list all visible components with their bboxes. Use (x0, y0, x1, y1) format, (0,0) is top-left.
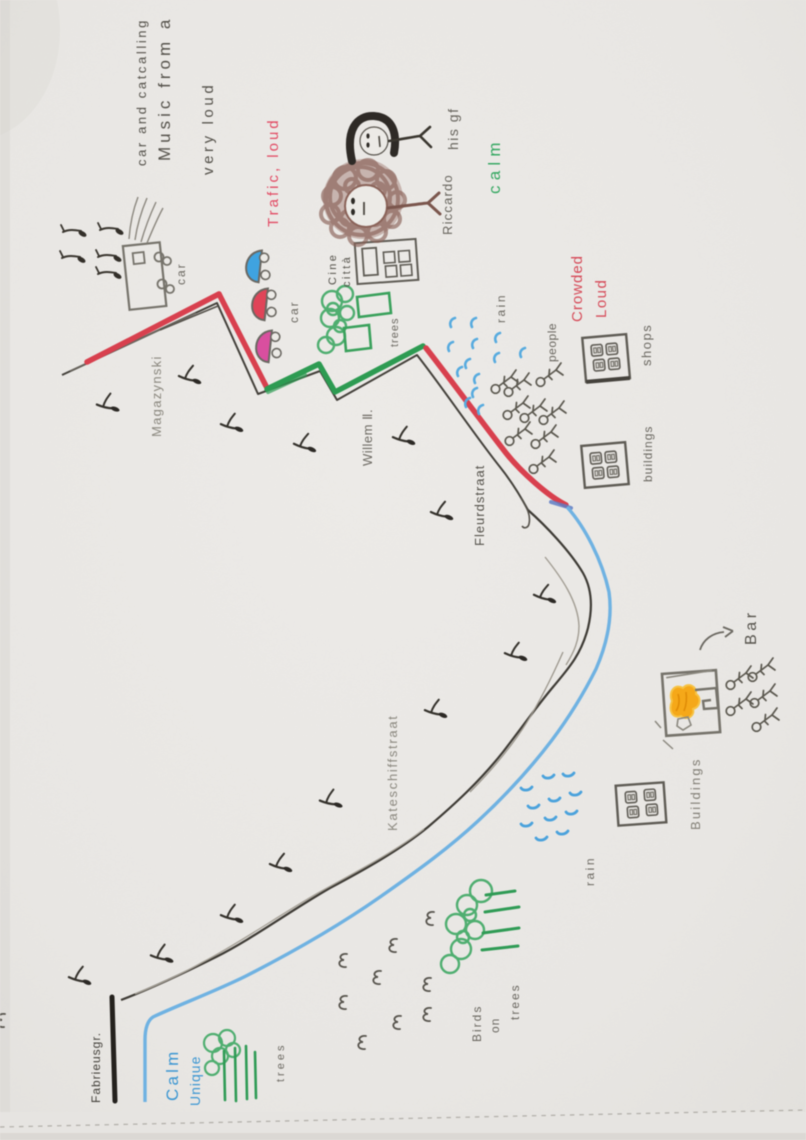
svg-text:Kateschiffstraat: Kateschiffstraat (385, 714, 400, 831)
svg-text:trees: trees (508, 983, 522, 1020)
svg-text:Loud: Loud (593, 279, 610, 318)
svg-text:Riccardo: Riccardo (440, 174, 455, 235)
svg-text:Bar: Bar (743, 609, 760, 645)
svg-text:Cine: Cine (327, 253, 339, 285)
svg-text:car: car (287, 300, 301, 323)
svg-text:trees: trees (389, 318, 401, 347)
svg-text:Music from a: Music from a (155, 16, 174, 161)
svg-text:Buildings: Buildings (688, 757, 703, 830)
svg-text:città: città (341, 255, 353, 287)
svg-text:Fabrieusgr.: Fabrieusgr. (89, 1032, 103, 1103)
svg-text:rain: rain (494, 293, 508, 323)
svg-text:car and catcalling: car and catcalling (134, 18, 149, 166)
svg-text:shops: shops (639, 324, 654, 366)
svg-text:Fleurdstraat: Fleurdstraat (472, 465, 487, 546)
svg-text:very loud: very loud (200, 82, 217, 175)
svg-text:Willem Ⅱ.: Willem Ⅱ. (360, 409, 375, 466)
svg-text:his gf: his gf (445, 108, 461, 150)
svg-text:Unique: Unique (187, 1056, 203, 1106)
svg-text:Trafic, loud: Trafic, loud (265, 117, 282, 227)
svg-text:Calm: Calm (163, 1049, 182, 1101)
svg-text:people: people (545, 323, 559, 362)
svg-text:trees: trees (275, 1043, 287, 1082)
svg-text:calm: calm (485, 137, 504, 194)
svg-text:Birds: Birds (470, 1005, 484, 1042)
svg-text:buildings: buildings (641, 426, 655, 482)
svg-text:Magazynski: Magazynski (149, 355, 164, 437)
svg-text:Crowded: Crowded (569, 255, 586, 322)
svg-text:car: car (174, 262, 188, 285)
svg-text:rain: rain (583, 856, 597, 886)
svg-text:on: on (488, 1018, 502, 1033)
